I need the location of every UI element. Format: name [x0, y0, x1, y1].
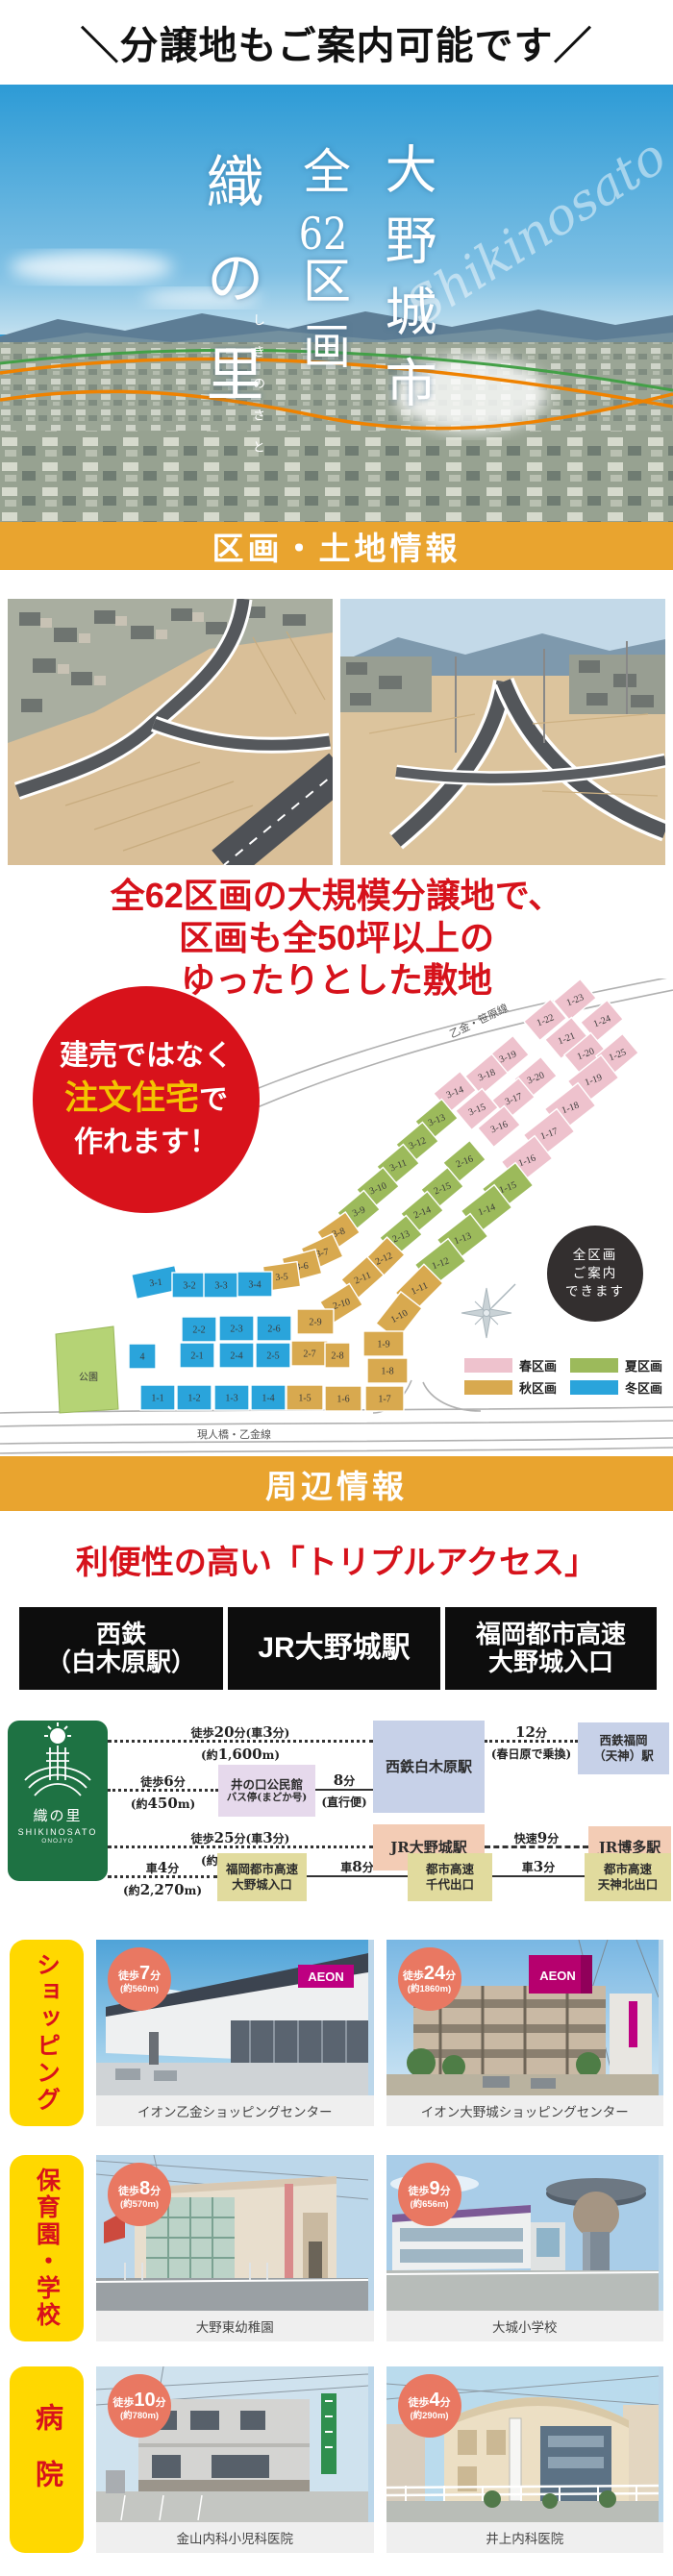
svg-text:全区画: 全区画: [573, 1247, 618, 1263]
facility-caption: 大城小学校: [386, 2311, 664, 2341]
legend-label: 春区画: [518, 1359, 557, 1374]
map-lot: 1-7: [365, 1386, 404, 1411]
facility-caption: 金山内科小児科医院: [96, 2522, 374, 2553]
svg-text:3-4: 3-4: [248, 1280, 261, 1291]
walk-time: 徒歩8分: [118, 2178, 161, 2199]
map-lot: 4: [129, 1344, 156, 1369]
walk-time-badge: 徒歩4分 (約290m): [398, 2374, 461, 2438]
map-lot: 3-4: [237, 1272, 272, 1297]
svg-text:1-2: 1-2: [187, 1394, 200, 1404]
access-link-dotted: 徒歩20分(車3分)(約1,600m): [108, 1740, 373, 1743]
map-lot: 2-5: [256, 1343, 290, 1368]
walk-distance: (約656m): [410, 2200, 448, 2210]
facility-category-school: 保育園・学校: [10, 2155, 84, 2341]
access-headers: 西鉄 （白木原駅） JR大野城駅 福岡都市高速 大野城入口: [19, 1607, 657, 1690]
map-lot: 2-3: [219, 1316, 254, 1341]
access-link-dotted: 徒歩6分(約450m): [108, 1789, 218, 1792]
svg-text:2-3: 2-3: [230, 1325, 242, 1335]
facility-card: AEON 徒歩7分 (約560m) イオン乙金ショッピングセンター: [96, 1940, 374, 2126]
map-note-circle: 全区画 ご案内 できます: [547, 1226, 643, 1322]
access-title: 利便性の高い「トリプルアクセス」: [0, 1536, 673, 1582]
svg-text:3-5: 3-5: [275, 1272, 288, 1283]
map-park-label: 公園: [79, 1372, 98, 1383]
facility-caption: イオン乙金ショッピングセンター: [96, 2095, 374, 2126]
access-link-time: 車3分: [492, 1858, 585, 1875]
facility-card: AEON 徒歩24分 (約1860m) イオン大野城ショッピングセンター: [386, 1940, 664, 2126]
map-lot: 1-9: [363, 1331, 404, 1356]
svg-text:1-3: 1-3: [225, 1394, 237, 1404]
access-link-time: 徒歩6分: [108, 1772, 218, 1790]
walk-distance: (約1860m): [408, 1985, 451, 1994]
map-lot: 1-6: [325, 1386, 361, 1411]
map-lot: 2-8: [325, 1343, 350, 1368]
svg-text:2-4: 2-4: [230, 1351, 242, 1362]
legend-swatch: [570, 1380, 618, 1395]
facility-card: 徒歩10分 (約780m) 金山内科小児科医院: [96, 2366, 374, 2553]
svg-text:1-8: 1-8: [381, 1367, 393, 1377]
hero-aerial-photo: 大野城市 全62区画 織の里 しきのさと Shikinosato: [0, 85, 673, 522]
svg-text:1-9: 1-9: [377, 1340, 389, 1350]
access-link-note: (約1,600m): [108, 1746, 373, 1763]
svg-text:3-2: 3-2: [183, 1281, 195, 1292]
map-legend: 春区画夏区画秋区画冬区画: [464, 1358, 662, 1396]
access-link-dotted: 徒歩25分(車3分)(約2,000m): [108, 1845, 373, 1848]
facility-card: 徒歩4分 (約290m) 井上内科医院: [386, 2366, 664, 2553]
facility-card: 徒歩9分 (約656m) 大城小学校: [386, 2155, 664, 2341]
map-lot: 2-9: [297, 1309, 334, 1334]
access-link-note: (春日原で乗換): [485, 1746, 578, 1762]
map-lot: 1-2: [177, 1385, 212, 1410]
brand-logo-sub: ONOJYO: [41, 1838, 73, 1845]
walk-time-badge: 徒歩9分 (約656m): [398, 2163, 461, 2226]
map-road-bottom-label: 現人橋・乙金線: [197, 1427, 271, 1441]
svg-text:3-3: 3-3: [214, 1281, 227, 1292]
map-lot: 1-5: [287, 1385, 323, 1410]
walk-time-badge: 徒歩8分 (約570m): [108, 2163, 171, 2226]
access-link-time: 12分: [485, 1723, 578, 1741]
walk-distance: (約290m): [410, 2412, 448, 2421]
page-title: ＼分譲地もご案内可能です／: [0, 0, 673, 85]
brand-logo-icon: [21, 1721, 94, 1803]
svg-text:1-5: 1-5: [298, 1394, 311, 1404]
access-link-dashed: 快速9分: [485, 1845, 588, 1848]
map-lot: 1-3: [214, 1385, 249, 1410]
access-link-dotted: 車4分(約2,270m): [108, 1875, 217, 1878]
legend-swatch: [570, 1358, 618, 1373]
walk-time: 徒歩4分: [408, 2390, 450, 2411]
svg-text:AEON: AEON: [539, 1969, 576, 1983]
site-plan-map: 乙金・笹原線 現人橋・乙金線 公園 1-231-221-241-211-201-…: [0, 978, 673, 1456]
svg-text:2-1: 2-1: [190, 1351, 203, 1362]
land-headline-line1: 全62区画の大規模分譲地で、: [0, 875, 673, 917]
facility-section-school: 保育園・学校: [10, 2155, 663, 2341]
badge-line1: 建売ではなく: [60, 1035, 233, 1077]
access-header-nishitetsu: 西鉄 （白木原駅）: [19, 1607, 223, 1690]
svg-text:ご案内: ご案内: [573, 1265, 618, 1281]
legend-swatch: [464, 1358, 512, 1373]
map-lot: 2-2: [182, 1317, 216, 1342]
svg-text:1-1: 1-1: [151, 1394, 163, 1404]
walk-time: 徒歩24分: [403, 1963, 456, 1984]
svg-text:2-7: 2-7: [303, 1350, 315, 1360]
land-photos: [0, 570, 673, 865]
walk-time: 徒歩10分: [112, 2390, 165, 2411]
access-link-time: 快速9分: [485, 1829, 588, 1846]
walk-distance: (約570m): [120, 2200, 159, 2210]
access-link-solid: 8分(直行便): [315, 1789, 373, 1791]
svg-text:2-9: 2-9: [309, 1318, 321, 1328]
legend-swatch: [464, 1380, 512, 1395]
access-header-expressway: 福岡都市高速 大野城入口: [445, 1607, 657, 1690]
map-lot: 1-4: [251, 1385, 286, 1410]
access-link-time: 8分: [315, 1771, 373, 1789]
walk-time: 徒歩7分: [118, 1963, 161, 1984]
access-link-note: (直行便): [315, 1794, 373, 1810]
walk-distance: (約780m): [120, 2412, 159, 2421]
map-lot: 2-7: [291, 1341, 328, 1366]
svg-text:1-6: 1-6: [336, 1395, 349, 1405]
walk-time-badge: 徒歩10分 (約780m): [108, 2374, 171, 2438]
section-band-land: 区画・土地情報: [0, 522, 673, 570]
land-photo-right: [340, 599, 665, 865]
access-node-bus-stop: 井の口公民館バス停(まどか号): [218, 1765, 315, 1817]
svg-text:できます: できます: [565, 1284, 625, 1300]
access-link-note: (約450m): [108, 1795, 218, 1812]
facility-category-shopping: ショッピング: [10, 1940, 84, 2126]
access-link-dotted: 12分(春日原で乗換): [485, 1740, 578, 1743]
walk-distance: (約560m): [120, 1985, 159, 1994]
hero-furigana: しきのさと: [248, 313, 266, 472]
facility-caption: 大野東幼稚園: [96, 2311, 374, 2341]
brand-logo-romaji: SHIKINOSATO: [18, 1827, 98, 1837]
access-link-time: 徒歩25分(車3分): [108, 1829, 373, 1846]
map-lot: 2-1: [180, 1343, 214, 1368]
facility-section-shopping: ショッピング AEON 徒歩7分: [10, 1940, 663, 2126]
svg-text:1-7: 1-7: [378, 1395, 390, 1405]
access-link-time: 車4分: [108, 1859, 217, 1876]
access-node-shirakibaru: 西鉄白木原駅: [373, 1721, 485, 1813]
badge-highlight: 注文住宅: [64, 1079, 199, 1117]
svg-text:3-1: 3-1: [149, 1277, 163, 1289]
walk-time-badge: 徒歩7分 (約560m): [108, 1947, 171, 2011]
access-node-tenjin: 西鉄福岡（天神）駅: [578, 1722, 669, 1774]
svg-text:2-8: 2-8: [331, 1351, 343, 1362]
map-lot: 1-8: [367, 1358, 408, 1383]
svg-text:4: 4: [140, 1352, 145, 1363]
access-link-solid: 車8分: [307, 1875, 408, 1877]
custom-home-badge: 建売ではなく 注文住宅で 作れます！: [33, 986, 260, 1213]
brand-logo: 織の里 SHIKINOSATO ONOJYO: [8, 1721, 108, 1881]
access-diagram: 織の里 SHIKINOSATO ONOJYO 徒歩20分(車3分)(約1,600…: [0, 1721, 673, 1903]
badge-line2: 注文住宅で: [64, 1077, 228, 1122]
map-lot: 1-1: [140, 1385, 175, 1410]
facility-category-hospital: 病院: [10, 2366, 84, 2553]
map-lot: 3-2: [172, 1273, 207, 1298]
brand-logo-name: 織の里: [33, 1805, 82, 1825]
facility-caption: 井上内科医院: [386, 2522, 664, 2553]
map-lot: 2-4: [219, 1343, 254, 1368]
legend-label: 夏区画: [624, 1359, 662, 1374]
access-node-ic-tenjinkita: 都市高速天神北出口: [585, 1853, 671, 1901]
section-band-around: 周辺情報: [0, 1456, 673, 1511]
access-link-solid: 車3分: [492, 1875, 585, 1877]
map-park: [56, 1326, 118, 1413]
access-node-ic-chiyo: 都市高速千代出口: [408, 1853, 492, 1901]
hero-title-count: 全62区画: [288, 146, 358, 386]
access-node-ic-onojo: 福岡都市高速大野城入口: [217, 1853, 307, 1901]
svg-text:1-4: 1-4: [262, 1394, 274, 1404]
walk-time: 徒歩9分: [408, 2178, 450, 2199]
map-lot: 3-3: [204, 1273, 238, 1298]
facility-section-hospital: 病院 徒歩10分 (約780m): [10, 2366, 663, 2553]
compass-icon: [461, 1284, 515, 1338]
svg-text:2-2: 2-2: [192, 1325, 205, 1336]
svg-text:2-5: 2-5: [266, 1351, 279, 1362]
svg-text:AEON: AEON: [308, 1969, 344, 1984]
facility-card: 徒歩8分 (約570m) 大野東幼稚園: [96, 2155, 374, 2341]
legend-label: 冬区画: [625, 1381, 662, 1396]
land-headline-line2: 区画も全50坪以上の: [0, 917, 673, 959]
badge-line3: 作れます！: [74, 1122, 218, 1164]
svg-text:2-6: 2-6: [267, 1325, 280, 1335]
map-lot: 2-6: [257, 1316, 291, 1341]
facility-caption: イオン大野城ショッピングセンター: [386, 2095, 664, 2126]
access-link-note: (約2,270m): [108, 1881, 217, 1898]
land-photo-left: [8, 599, 333, 865]
access-header-jr: JR大野城駅: [228, 1607, 440, 1690]
access-link-time: 徒歩20分(車3分): [108, 1723, 373, 1741]
flyer-page: ＼分譲地もご案内可能です／: [0, 0, 673, 2576]
legend-label: 秋区画: [519, 1381, 557, 1396]
walk-time-badge: 徒歩24分 (約1860m): [398, 1947, 461, 2011]
